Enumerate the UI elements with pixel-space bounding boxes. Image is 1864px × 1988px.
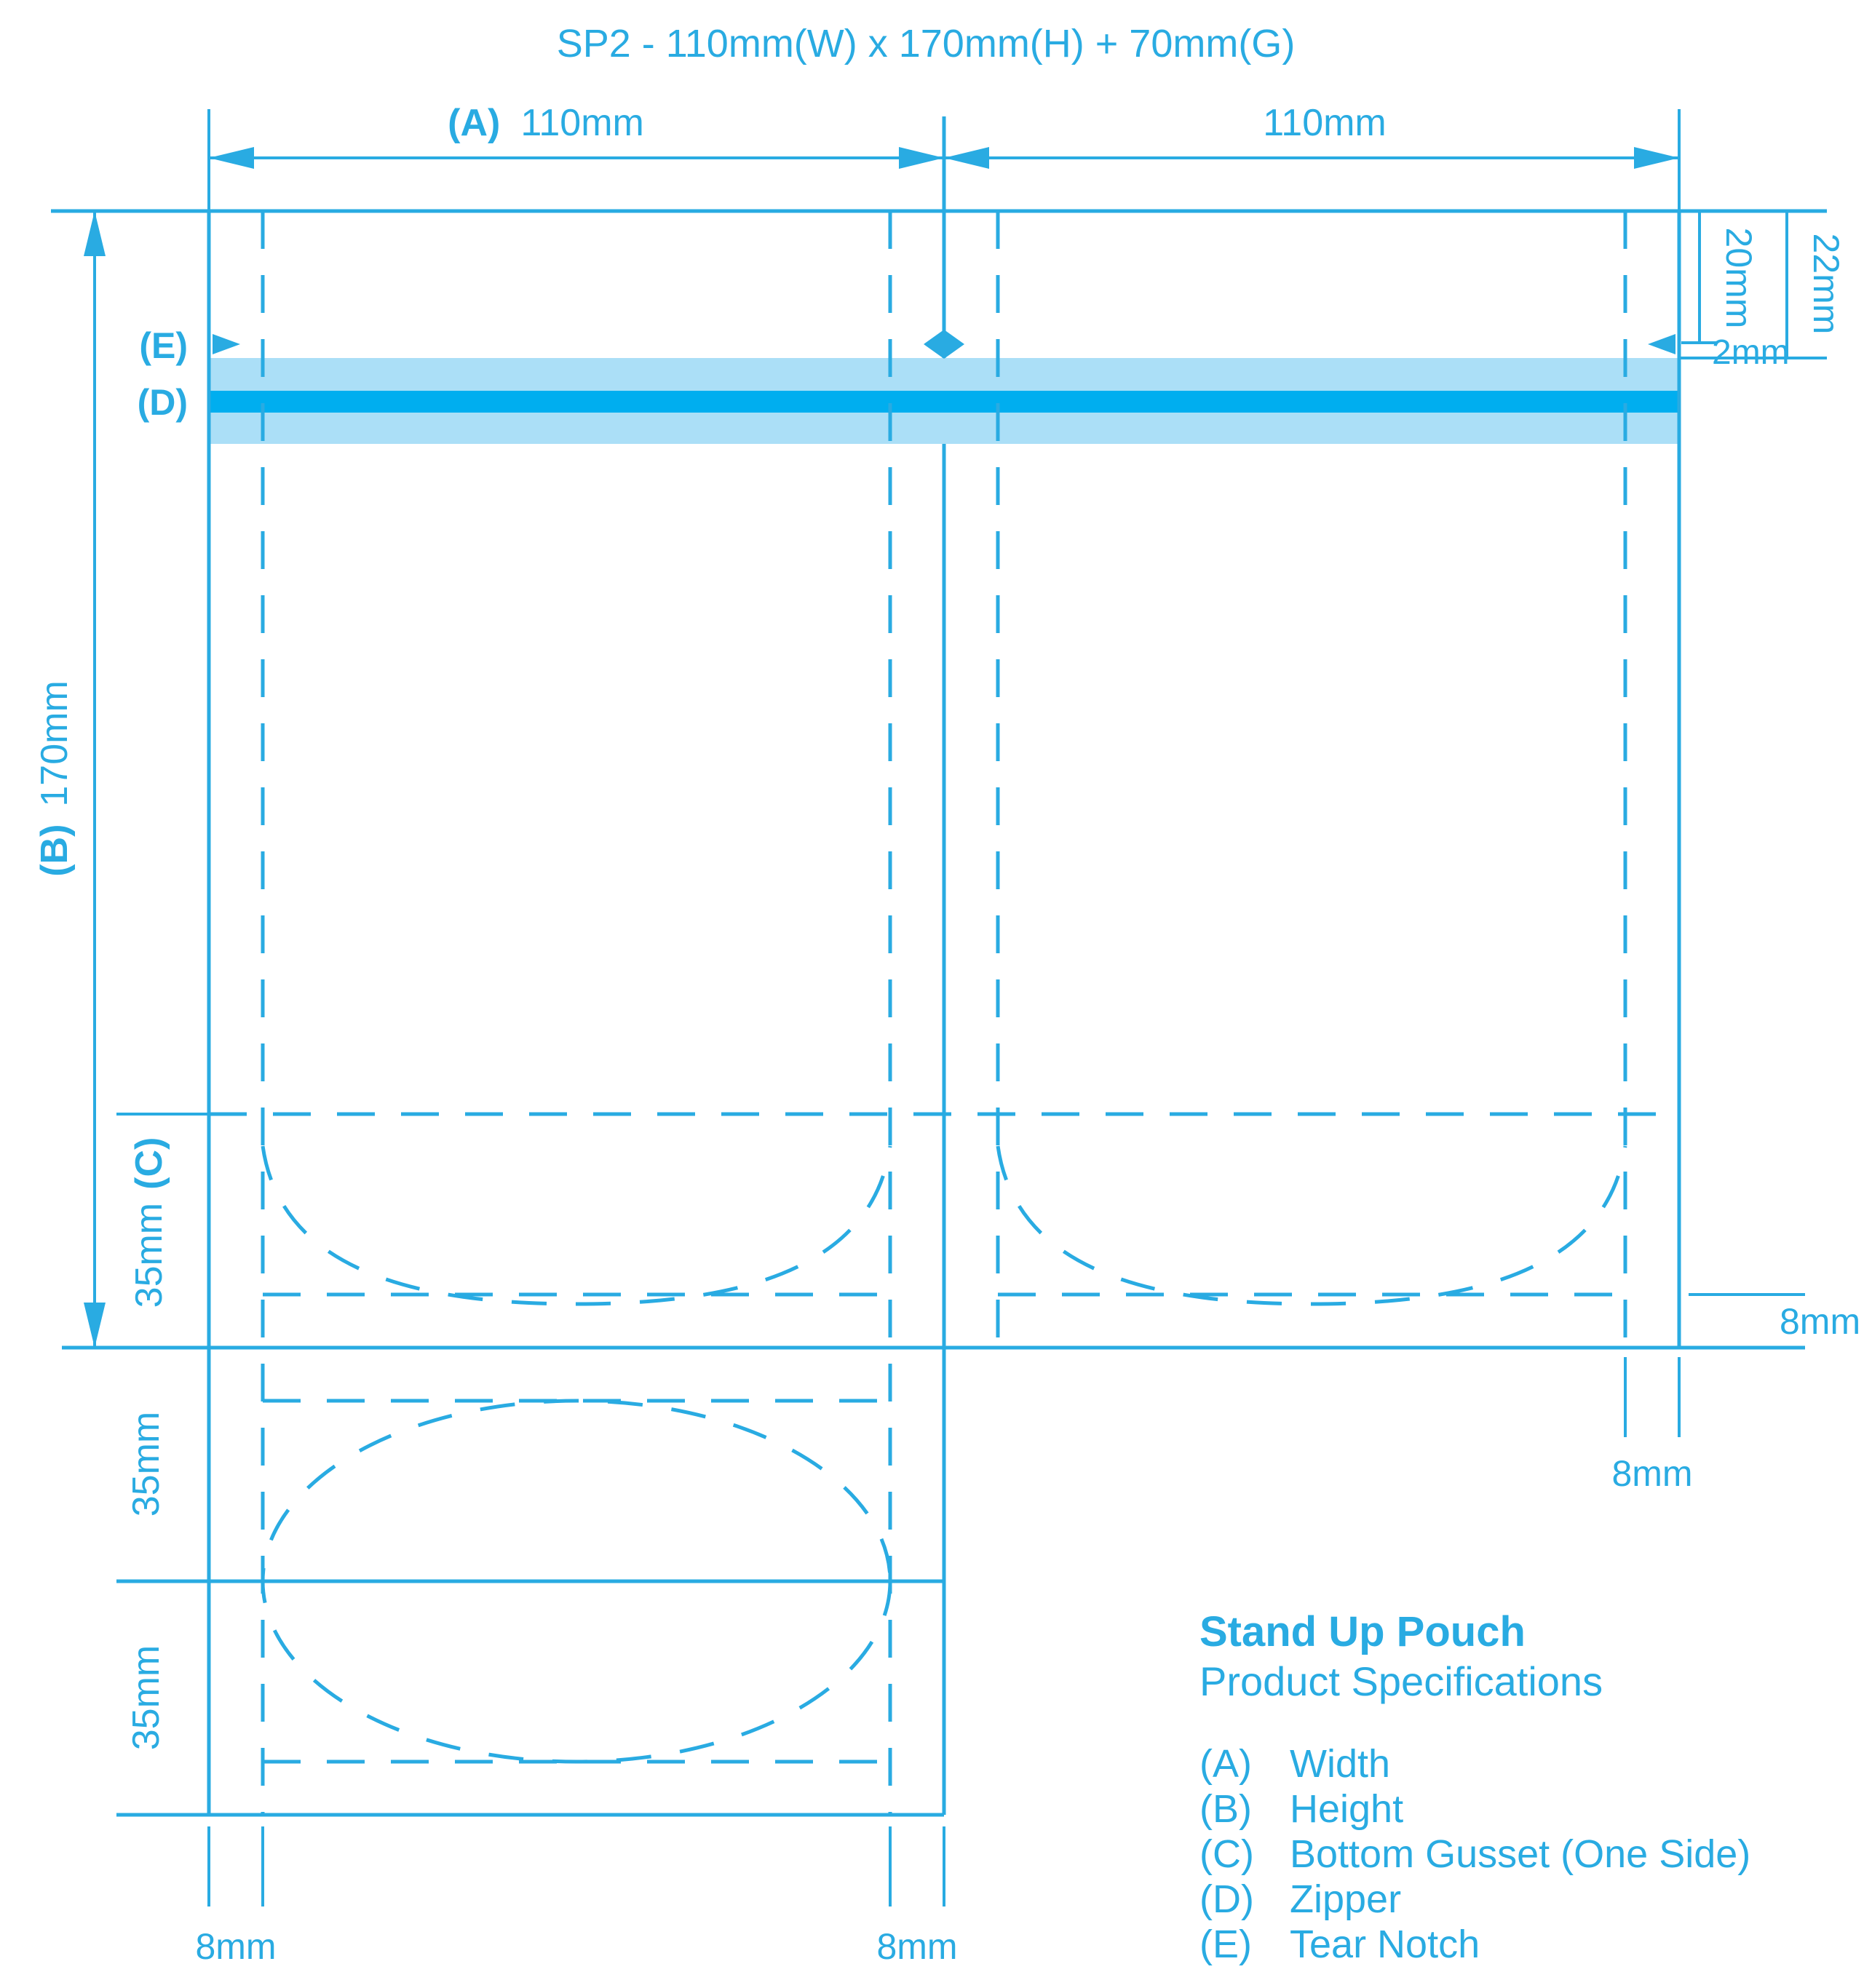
seal-bottom-center-label: 8mm bbox=[876, 1926, 957, 1967]
legend-item: (B) Height bbox=[1199, 1787, 1403, 1831]
flap-lower-dim-label: 35mm bbox=[125, 1645, 167, 1750]
top-dim-arrow-right-icon bbox=[1634, 147, 1679, 169]
legend-item-key: (A) bbox=[1199, 1742, 1252, 1786]
legend-item-key: (C) bbox=[1199, 1832, 1254, 1876]
top-dim-arrow-center-left-icon bbox=[899, 147, 944, 169]
band-offset-label: 22mm bbox=[1806, 234, 1847, 335]
seal-right-bottom-label: 8mm bbox=[1611, 1453, 1692, 1494]
legend-item-key: (D) bbox=[1199, 1877, 1254, 1921]
tear-notch-marker-right-icon bbox=[1648, 334, 1675, 354]
legend-item: (E) Tear Notch bbox=[1199, 1923, 1480, 1966]
gusset-curve-left-panel bbox=[263, 1146, 890, 1304]
pouch-spec-diagram: SP2 - 110mm(W) x 170mm(H) + 70mm(G) (A)1… bbox=[0, 0, 1864, 1988]
legend: Stand Up Pouch Product Specifications (A… bbox=[1199, 1608, 1750, 1966]
height-dim-label: (B)170mm bbox=[33, 680, 76, 877]
legend-item-key: (B) bbox=[1199, 1787, 1252, 1831]
legend-item-label: Height bbox=[1290, 1787, 1403, 1831]
legend-item-label: Bottom Gusset (One Side) bbox=[1290, 1832, 1750, 1876]
arrowheads bbox=[84, 147, 1679, 1348]
flap-upper-dim-label: 35mm bbox=[125, 1412, 167, 1516]
seal-bottom-left-label: 8mm bbox=[195, 1926, 276, 1967]
legend-item: (D) Zipper bbox=[1199, 1877, 1401, 1921]
zipper-stripe bbox=[209, 391, 1679, 413]
tear-notch-offset-label: 20mm bbox=[1718, 228, 1759, 329]
tear-notch-marker-left-icon bbox=[213, 334, 240, 354]
height-dim-arrow-top-icon bbox=[84, 211, 106, 256]
tear-notch-marker-center-icon bbox=[924, 330, 964, 359]
top-dim-arrow-center-right-icon bbox=[944, 147, 989, 169]
gusset-curve-right-panel bbox=[998, 1146, 1625, 1304]
legend-item-label: Tear Notch bbox=[1290, 1923, 1480, 1966]
legend-subheading: Product Specifications bbox=[1199, 1658, 1603, 1704]
legend-heading: Stand Up Pouch bbox=[1199, 1608, 1526, 1655]
legend-item-label: Width bbox=[1290, 1742, 1390, 1786]
pouch-spec-page: SP2 - 110mm(W) x 170mm(H) + 70mm(G) (A)1… bbox=[0, 0, 1864, 1988]
seal-right-side-label: 8mm bbox=[1780, 1301, 1860, 1342]
top-right-width-label: 110mm bbox=[1263, 102, 1387, 144]
legend-item-label: Zipper bbox=[1290, 1877, 1401, 1921]
zipper-callout-label: (D) bbox=[138, 382, 188, 423]
diagram-title: SP2 - 110mm(W) x 170mm(H) + 70mm(G) bbox=[557, 22, 1296, 65]
legend-item-key: (E) bbox=[1199, 1923, 1252, 1966]
top-left-width-label: (A)110mm bbox=[448, 102, 644, 144]
gusset-dim-label: 35mm(C) bbox=[128, 1137, 170, 1308]
top-dim-arrow-left-icon bbox=[209, 147, 254, 169]
legend-item: (C) Bottom Gusset (One Side) bbox=[1199, 1832, 1750, 1876]
height-dim-arrow-bottom-icon bbox=[84, 1303, 106, 1348]
tear-notch-callout-label: (E) bbox=[139, 325, 188, 366]
legend-item: (A) Width bbox=[1199, 1742, 1390, 1786]
notch-band-gap-label: 2mm bbox=[1712, 333, 1790, 372]
